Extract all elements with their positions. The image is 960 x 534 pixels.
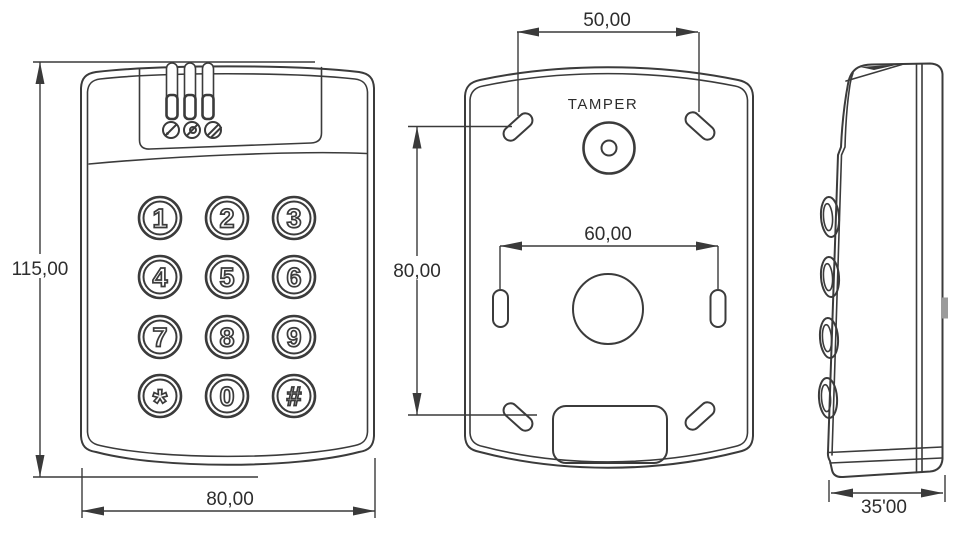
keypad-button-8: 8 <box>206 316 248 358</box>
led-indicator-2 <box>185 63 196 119</box>
keypad-button-label: * <box>153 382 168 423</box>
back-mid-holes-dim-label: 60,00 <box>584 224 632 245</box>
keypad-button-6: 6 <box>273 256 315 298</box>
status-icon-2 <box>184 122 200 138</box>
front-height-dim-label: 115,00 <box>12 259 69 280</box>
back-vertical-dim-label: 80,00 <box>393 261 441 282</box>
keypad-button-label: 3 <box>286 204 301 234</box>
tamper-switch <box>584 123 635 174</box>
led-indicators <box>167 63 214 119</box>
keypad-button-4: 4 <box>139 256 181 298</box>
keypad-button-label: 4 <box>152 263 167 293</box>
keypad-button-5: 5 <box>206 256 248 298</box>
led-indicator-3 <box>203 63 214 119</box>
drawing-canvas: 1 2 3 4 5 6 7 <box>0 0 960 534</box>
bezel-line <box>89 153 367 164</box>
side-mounting-tab <box>941 298 948 319</box>
keypad-button-7: 7 <box>139 316 181 358</box>
mounting-slot-top-right <box>683 109 718 142</box>
keypad-button-label: # <box>286 382 301 412</box>
back-vertical-dimension: 80,00 <box>390 127 537 416</box>
keypad-button-9: 9 <box>273 316 315 358</box>
side-depth-dim-label: 35'00 <box>861 497 907 518</box>
back-mid-holes-dimension: 60,00 <box>500 224 718 289</box>
keypad-button-label: 0 <box>219 382 234 412</box>
keypad-button-label: 7 <box>152 323 167 353</box>
keypad-button-3: 3 <box>273 197 315 239</box>
front-width-dimension: 80,00 <box>82 458 375 518</box>
cable-hole <box>573 274 643 344</box>
status-icon-1 <box>163 122 179 138</box>
back-view: TAMPER 50,00 60,00 <box>390 10 753 468</box>
status-icons <box>163 122 221 138</box>
keypad-button-label: 1 <box>152 204 167 234</box>
tamper-label: TAMPER <box>568 96 638 113</box>
mounting-slot-mid-left <box>493 290 508 327</box>
keypad-button-star: * <box>139 375 181 423</box>
side-view: 35'00 <box>818 64 948 519</box>
mounting-slot-mid-right <box>711 290 726 327</box>
keypad-button-hash: # <box>273 375 315 417</box>
side-bottom-cap-line-2 <box>830 458 942 463</box>
front-view: 1 2 3 4 5 6 7 <box>10 62 375 518</box>
side-bottom-cap-line-1 <box>829 447 943 453</box>
technical-drawing: 1 2 3 4 5 6 7 <box>0 0 960 534</box>
keypad-button-2: 2 <box>206 197 248 239</box>
keypad: 1 2 3 4 5 6 7 <box>139 197 315 423</box>
front-width-dim-label: 80,00 <box>206 489 254 510</box>
status-icon-3 <box>205 122 221 138</box>
back-top-holes-dim-label: 50,00 <box>583 10 631 31</box>
keypad-button-1: 1 <box>139 197 181 239</box>
keypad-button-label: 2 <box>219 204 234 234</box>
mounting-slot-bottom-right <box>683 399 718 432</box>
keypad-button-label: 5 <box>219 263 234 293</box>
keypad-button-label: 6 <box>286 263 301 293</box>
side-depth-dimension: 35'00 <box>829 475 945 518</box>
keypad-button-0: 0 <box>206 375 248 417</box>
keypad-button-label: 9 <box>286 323 301 353</box>
keypad-button-label: 8 <box>219 323 234 353</box>
cable-entry-opening <box>553 406 667 463</box>
mounting-slot-bottom-left <box>501 400 536 433</box>
led-indicator-1 <box>167 63 178 119</box>
